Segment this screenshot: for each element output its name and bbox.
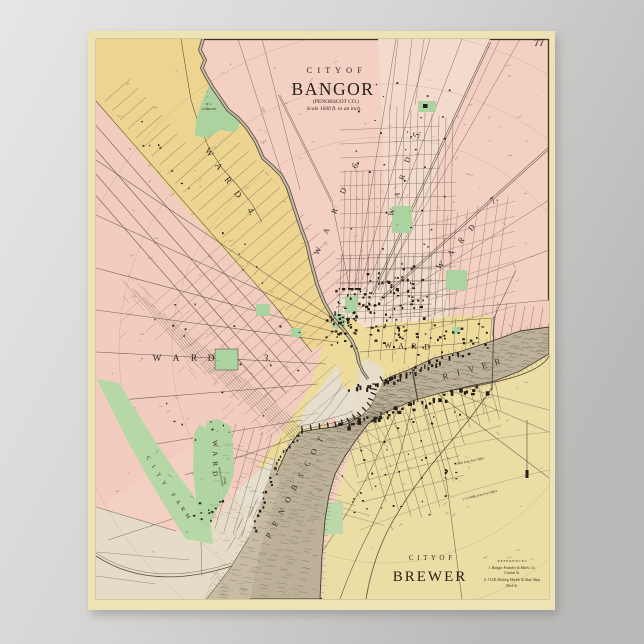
svg-text:BANGOR: BANGOR (292, 79, 375, 99)
svg-text:Scale 1600 ft. to an inch.: Scale 1600 ft. to an inch. (307, 105, 362, 112)
svg-text:R: R (191, 354, 198, 364)
svg-text:C I T Y O F: C I T Y O F (307, 65, 364, 75)
svg-text:A: A (173, 354, 180, 364)
svg-text:A: A (398, 342, 404, 351)
svg-text:D: D (424, 343, 430, 352)
svg-text:(PENOBSCOT CO.): (PENOBSCOT CO.) (313, 98, 359, 105)
svg-text:C I T Y O F: C I T Y O F (409, 554, 453, 562)
svg-text:BREWER: BREWER (393, 569, 468, 585)
svg-text:CEMETERY: CEMETERY (202, 108, 217, 111)
svg-text:1. Bangor Foundry & Mach. Co.: 1. Bangor Foundry & Mach. Co. (488, 566, 535, 570)
svg-text:M. C.: M. C. (206, 103, 213, 106)
svg-text:W: W (384, 341, 392, 350)
svg-text:Park St.: Park St. (505, 584, 518, 588)
svg-text:W: W (153, 354, 162, 364)
svg-text:Central St.: Central St. (504, 571, 520, 575)
svg-text:D: D (208, 354, 215, 364)
svg-text:3.: 3. (262, 354, 270, 364)
svg-text:4. J.O.B. Darling Marble & Sla: 4. J.O.B. Darling Marble & Slate Shop (484, 578, 540, 582)
svg-text:R: R (411, 342, 417, 351)
svg-text:R E F E R E N C E S: R E F E R E N C E S (498, 559, 527, 563)
